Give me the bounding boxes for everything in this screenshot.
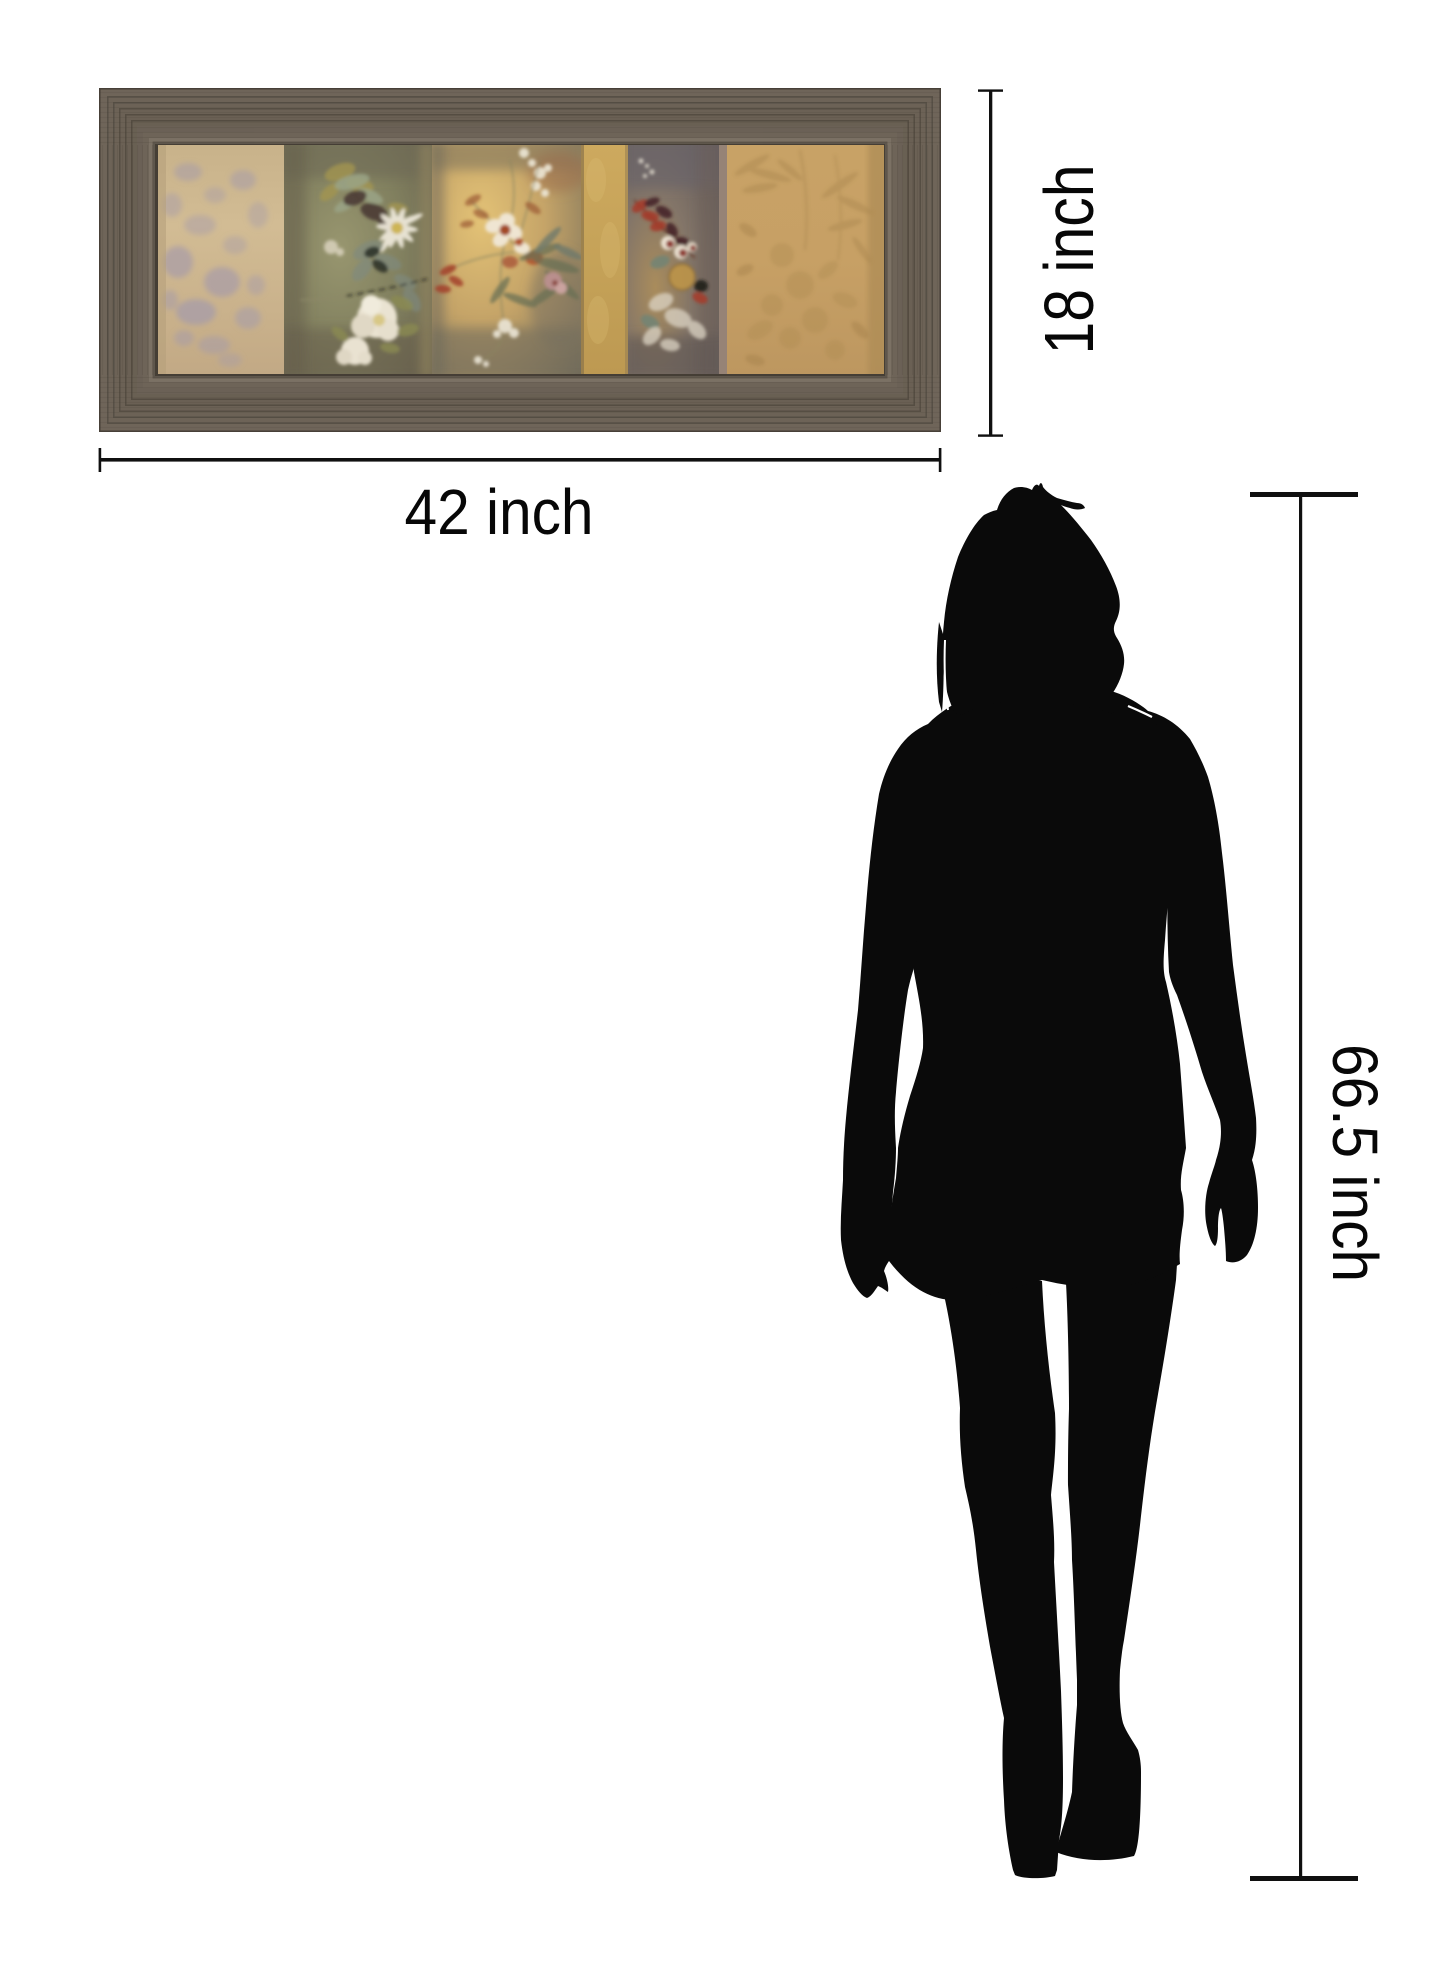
svg-text:42 inch: 42 inch [405,476,594,548]
svg-text:18 inch: 18 inch [1030,165,1108,355]
svg-text:66.5 inch: 66.5 inch [1319,1044,1391,1282]
